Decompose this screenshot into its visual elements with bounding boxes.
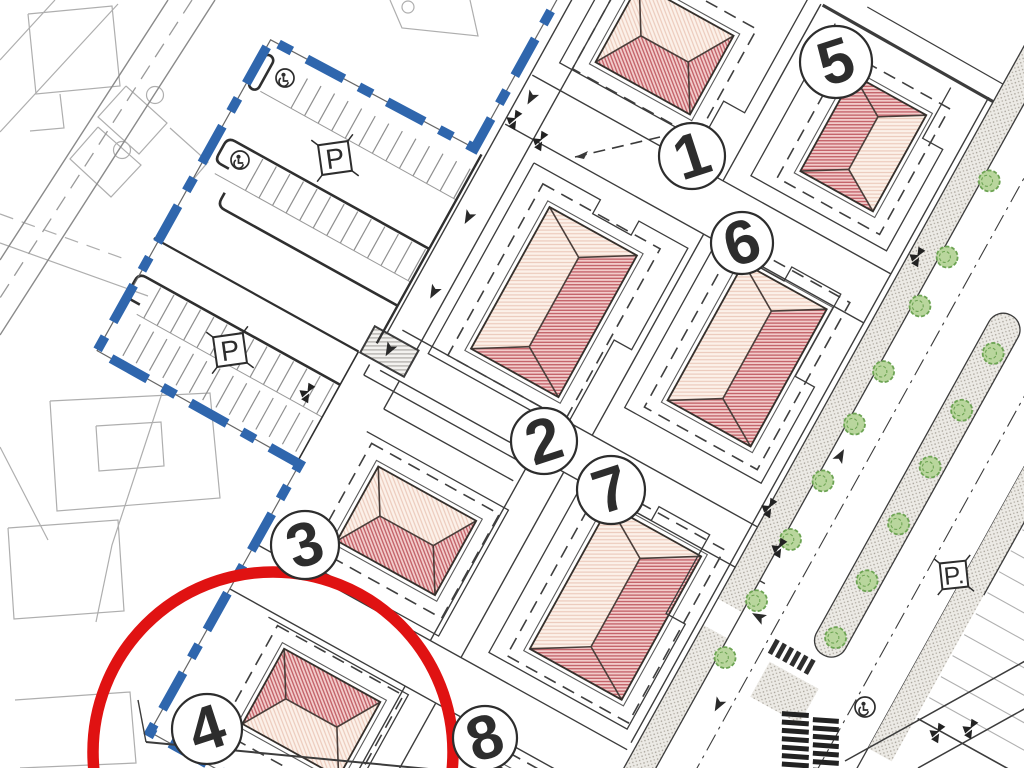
svg-text:P.: P. [942, 561, 965, 591]
